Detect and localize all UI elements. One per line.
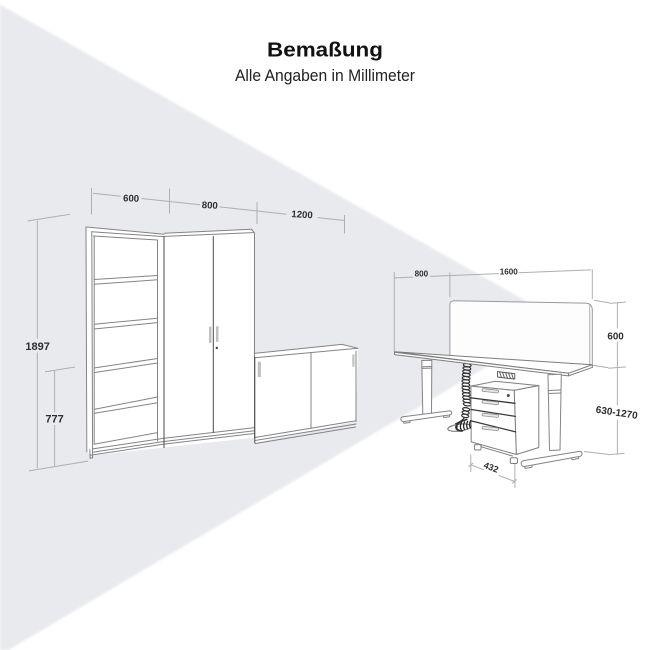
- svg-text:630-1270: 630-1270: [595, 405, 639, 422]
- svg-text:432: 432: [482, 460, 500, 475]
- svg-text:777: 777: [45, 413, 63, 425]
- svg-text:800: 800: [201, 200, 218, 212]
- svg-text:1200: 1200: [291, 209, 313, 221]
- svg-text:Alle Angaben in Millimeter: Alle Angaben in Millimeter: [235, 67, 415, 85]
- svg-text:600: 600: [607, 331, 624, 342]
- svg-text:Bemaßung: Bemaßung: [267, 39, 383, 62]
- svg-text:600: 600: [123, 193, 139, 205]
- svg-text:1600: 1600: [500, 268, 519, 277]
- svg-text:800: 800: [415, 270, 429, 279]
- svg-text:1897: 1897: [25, 341, 49, 353]
